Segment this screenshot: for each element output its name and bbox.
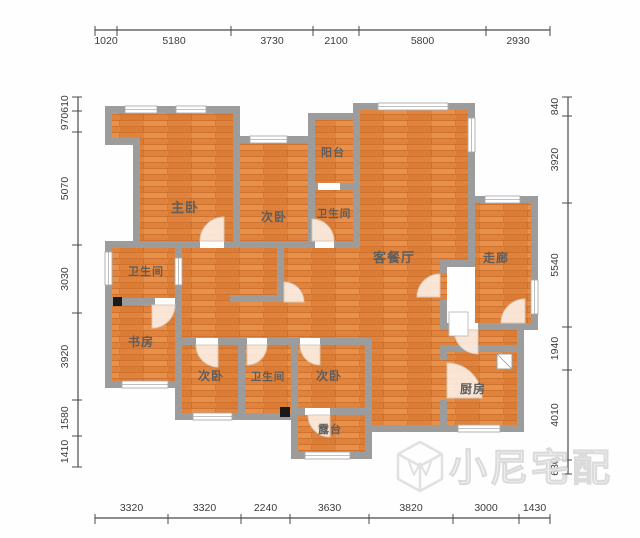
dimension-value: 3730 <box>260 35 284 47</box>
room-label-kitchen: 厨房 <box>460 381 486 396</box>
wall-segment <box>334 241 360 248</box>
floor-bedroom-top <box>240 143 308 241</box>
room-label-bedroom-bottom-mid: 次卧 <box>316 368 342 383</box>
dimension-value: 4010 <box>549 403 561 427</box>
wall-segment <box>468 203 475 267</box>
dimension-value: 840 <box>549 98 561 116</box>
dimension-chain: 3320332022403630382030001430 <box>95 502 550 524</box>
dimension-value: 3920 <box>59 345 71 369</box>
wall-segment <box>517 345 524 432</box>
wall-segment <box>233 106 240 248</box>
room-label-bathroom-left: 卫生间 <box>128 264 164 278</box>
dimension-value: 3000 <box>474 502 498 514</box>
pillar <box>280 407 290 417</box>
dimension-value: 3320 <box>120 502 144 514</box>
dimension-value: 5800 <box>411 35 435 47</box>
dimension-value: 3630 <box>318 502 342 514</box>
wall-segment <box>291 338 298 420</box>
dimension-value: 3920 <box>549 148 561 172</box>
wall-segment <box>365 425 447 432</box>
room-label-corridor: 走廊 <box>483 250 509 265</box>
room-label-bedroom-top: 次卧 <box>261 209 287 224</box>
room-label-bathroom-top: 卫生间 <box>317 207 352 220</box>
wall-segment <box>308 183 318 190</box>
dimension-value: 5070 <box>59 177 71 201</box>
dimension-value: 5180 <box>162 35 186 47</box>
room-label-living-dining: 客餐厅 <box>373 250 415 265</box>
dimension-value: 2240 <box>254 502 278 514</box>
wall-segment <box>133 138 140 248</box>
wall-segment <box>105 241 112 252</box>
dimension-value: 1020 <box>94 35 118 47</box>
pillar <box>113 297 122 306</box>
wall-segment <box>440 345 447 360</box>
wall-segment <box>320 338 372 345</box>
dimension-chain: 61097050703030392015801410 <box>59 95 82 467</box>
room-label-bedroom-bottom-left: 次卧 <box>198 368 224 383</box>
room-label-terrace: 露台 <box>318 422 342 436</box>
wall-segment <box>175 338 182 420</box>
floor-plan-image: 主卧次卧阳台卫生间客餐厅走廊卫生间书房次卧卫生间次卧露台厨房 102051803… <box>0 0 640 538</box>
wall-segment <box>365 338 372 459</box>
dimension-value: 970 <box>59 113 71 131</box>
floor-living-dining <box>360 110 468 267</box>
wall-segment <box>440 260 447 273</box>
dimension-value: 1410 <box>59 440 71 464</box>
room-label-study: 书房 <box>128 334 154 349</box>
dimension-value: 1430 <box>523 502 547 514</box>
wall-segment <box>224 241 312 248</box>
dimension-value: 3320 <box>193 502 217 514</box>
cube-logo-icon <box>398 442 442 491</box>
dimension-value: 1580 <box>59 406 71 430</box>
wall-segment <box>353 110 360 248</box>
wall-segment <box>440 345 524 352</box>
wall-segment <box>277 243 284 302</box>
dimension-value: 3820 <box>399 502 423 514</box>
room-label-bathroom-bottom: 卫生间 <box>251 370 286 383</box>
wall-segment <box>230 295 284 302</box>
watermark: 小尼宅配 <box>398 442 613 491</box>
dimension-value: 5540 <box>549 253 561 277</box>
room-label-balcony: 阳台 <box>321 145 345 159</box>
dimension-value: 3030 <box>59 267 71 291</box>
wall-segment <box>238 338 245 420</box>
dimension-chain: 102051803730210058002930 <box>94 26 550 47</box>
wall-segment <box>291 408 298 459</box>
wall-segment <box>308 113 360 120</box>
dimension-chain: 8403920554019404010630 <box>549 97 572 476</box>
dimension-value: 2930 <box>506 35 530 47</box>
wall-segment <box>175 241 182 258</box>
floor-living-lower <box>372 338 447 425</box>
wall-segment <box>478 323 538 330</box>
wall-segment <box>340 183 360 190</box>
cabinet-fixture <box>449 312 468 336</box>
floor-plan-canvas: 主卧次卧阳台卫生间客餐厅走廊卫生间书房次卧卫生间次卧露台厨房 102051803… <box>0 0 640 538</box>
dimension-value: 2100 <box>324 35 348 47</box>
wall-segment <box>175 285 182 345</box>
dimension-value: 1940 <box>549 337 561 361</box>
watermark-text: 小尼宅配 <box>449 447 613 490</box>
wall-segment <box>105 241 200 248</box>
room-label-master-bedroom: 主卧 <box>171 200 199 215</box>
dimension-value: 610 <box>59 95 71 113</box>
wall-segment <box>105 298 155 305</box>
wall-segment <box>440 300 447 330</box>
